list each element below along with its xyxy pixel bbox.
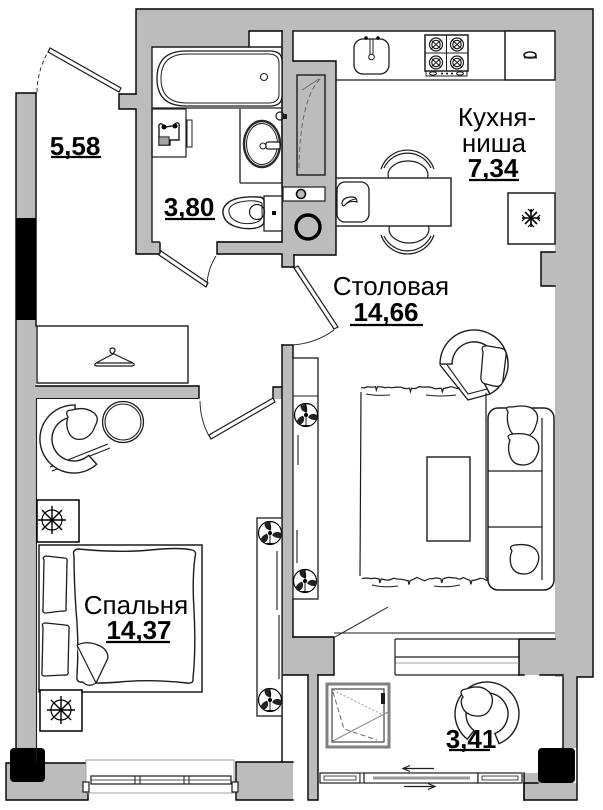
svg-text:7,34: 7,34 (468, 153, 519, 183)
svg-text:14,37: 14,37 (106, 615, 171, 645)
svg-text:3,80: 3,80 (164, 192, 215, 222)
svg-text:14,66: 14,66 (353, 297, 418, 327)
